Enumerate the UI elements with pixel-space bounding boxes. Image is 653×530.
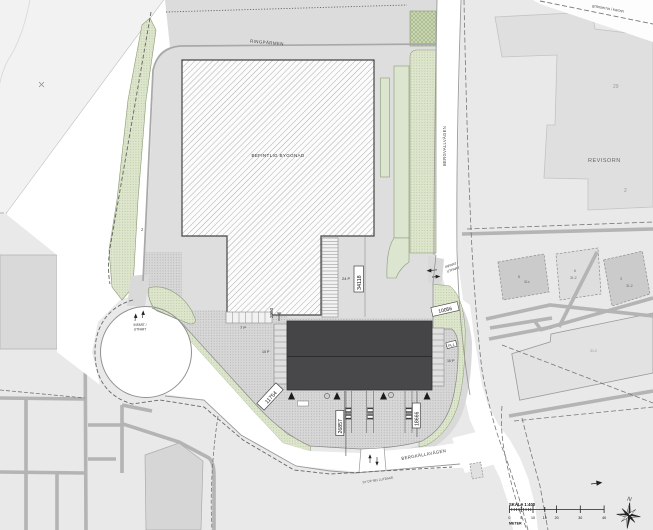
svg-text:UTFART: UTFART <box>134 328 146 332</box>
svg-text:SKALA 1:400: SKALA 1:400 <box>509 502 536 507</box>
svg-text:3: 3 <box>620 277 622 281</box>
svg-text:20: 20 <box>555 516 559 520</box>
svg-text:31:2: 31:2 <box>590 349 597 353</box>
svg-text:30: 30 <box>578 516 582 520</box>
svg-text:34118: 34118 <box>357 275 363 290</box>
svg-text:6: 6 <box>574 269 576 273</box>
svg-text:31:2: 31:2 <box>626 284 633 288</box>
svg-text:10 P: 10 P <box>262 350 270 354</box>
svg-text:40: 40 <box>602 516 606 520</box>
svg-text:0: 0 <box>508 516 510 520</box>
svg-text:BEFINTLIG BYGGNAD: BEFINTLIG BYGGNAD <box>251 153 304 158</box>
svg-text:7 P: 7 P <box>240 325 246 330</box>
svg-text:REVISORN: REVISORN <box>588 158 621 164</box>
svg-text:5: 5 <box>520 516 522 520</box>
svg-text:2950: 2950 <box>269 307 274 318</box>
svg-text:31:2: 31:2 <box>570 276 577 280</box>
svg-text:15: 15 <box>543 516 547 520</box>
svg-text:8: 8 <box>518 275 520 279</box>
svg-text:METER: METER <box>509 522 522 526</box>
svg-text:10: 10 <box>531 516 535 520</box>
svg-text:29: 29 <box>613 84 619 90</box>
svg-text:31x: 31x <box>524 280 530 284</box>
svg-text:26857: 26857 <box>338 419 344 434</box>
svg-text:10 P: 10 P <box>447 359 455 363</box>
svg-text:BERGVALLVÄGEN: BERGVALLVÄGEN <box>442 126 447 166</box>
svg-text:2: 2 <box>624 188 627 194</box>
svg-text:INFART /: INFART / <box>134 323 147 327</box>
svg-text:18666: 18666 <box>415 411 421 426</box>
svg-text:24 P: 24 P <box>342 276 351 281</box>
